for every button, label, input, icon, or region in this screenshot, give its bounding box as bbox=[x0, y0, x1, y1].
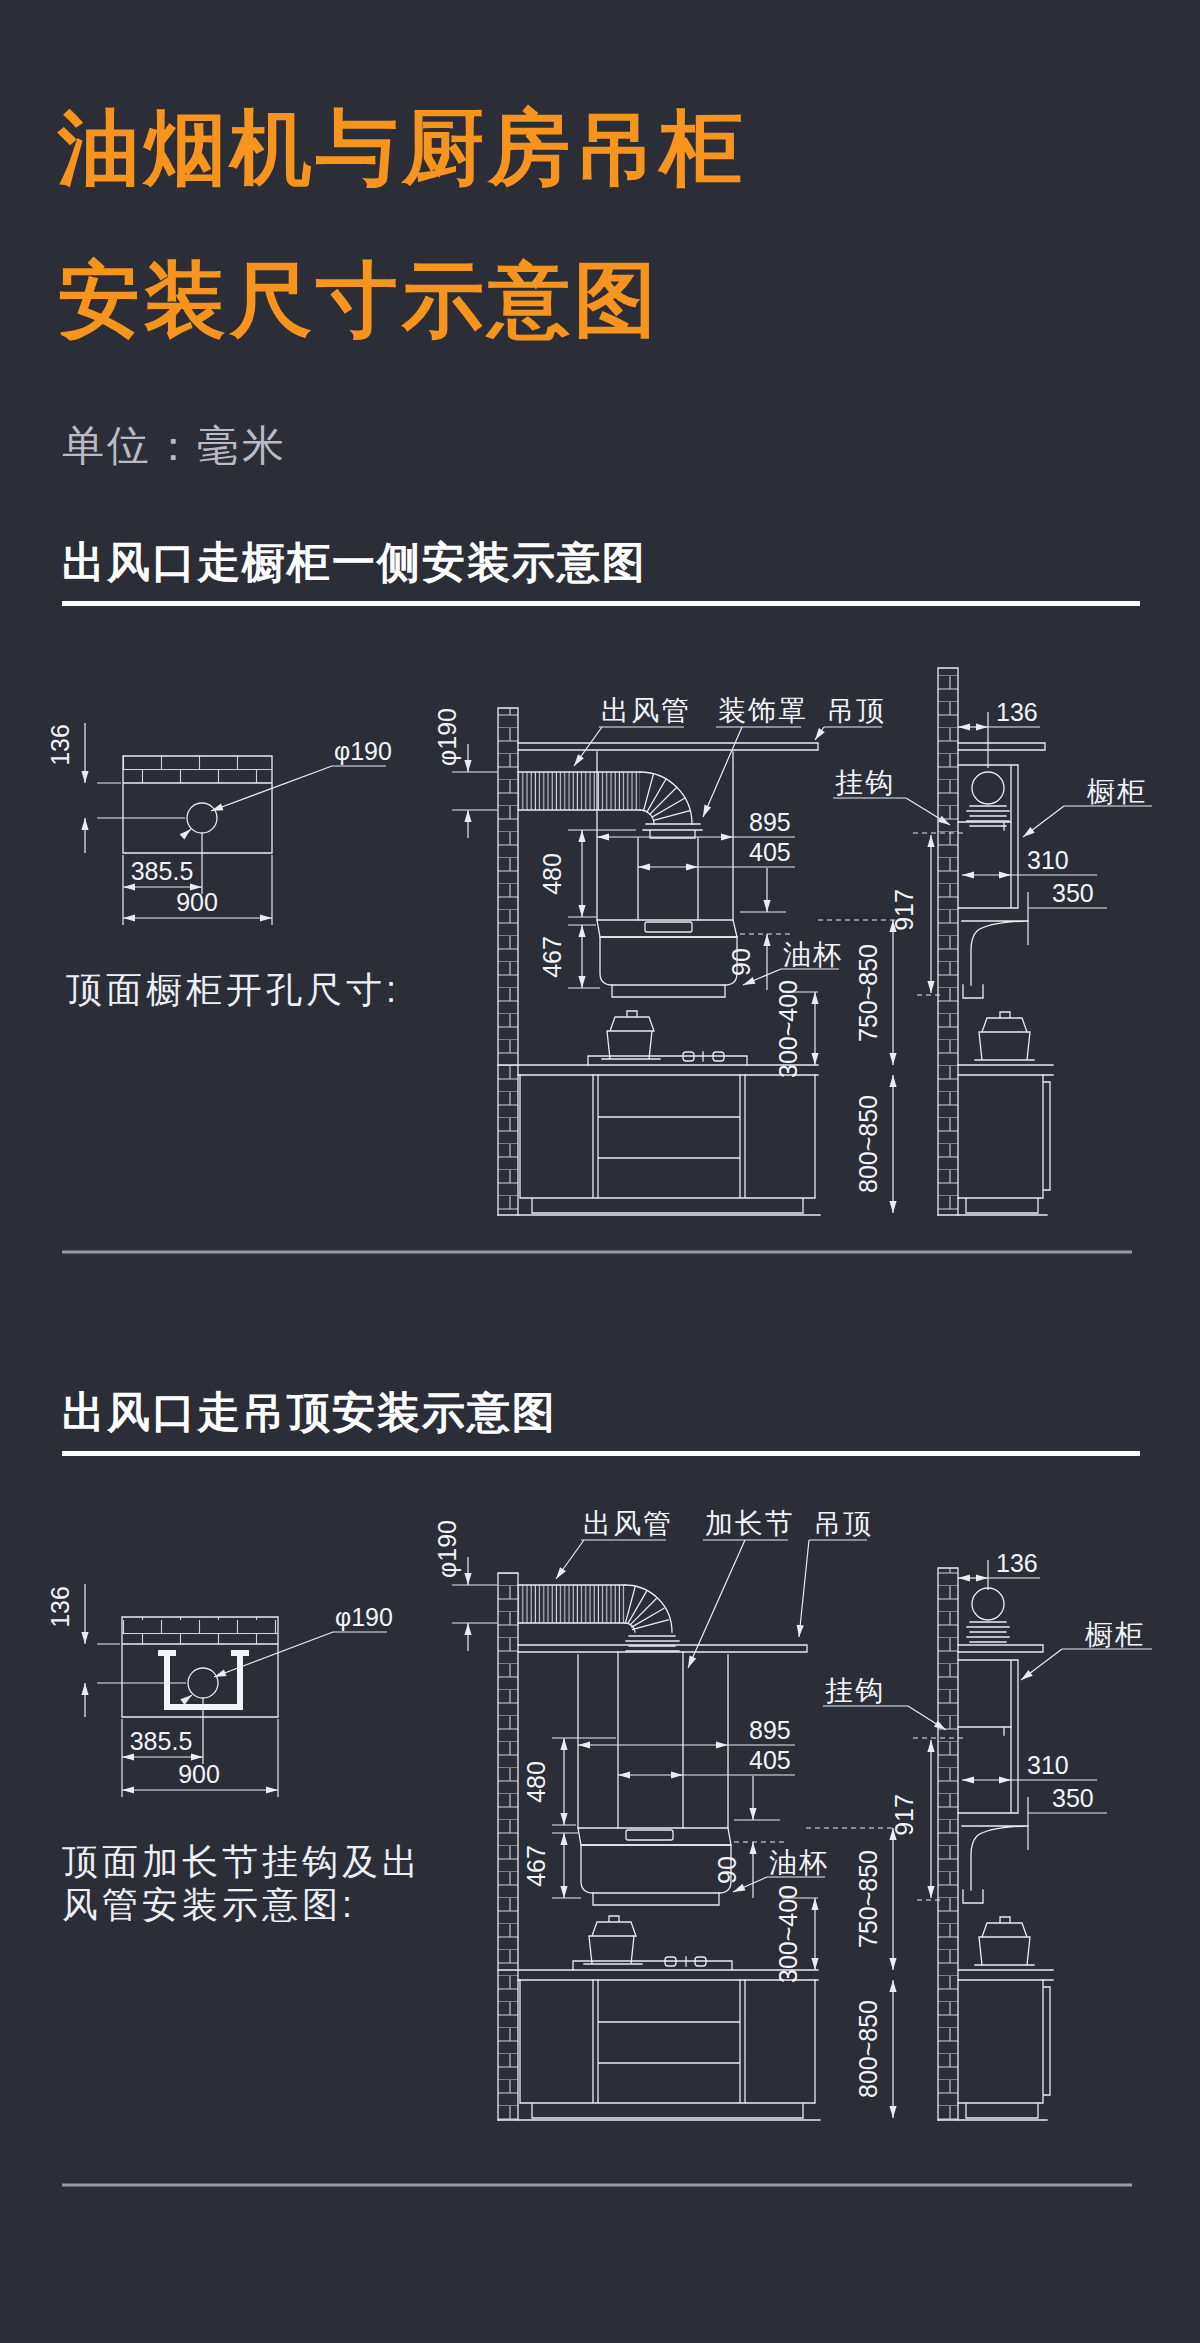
brick-course bbox=[122, 1617, 278, 1644]
edge-distance-dim: 136 bbox=[46, 1586, 74, 1628]
duct-diameter-dim: φ190 bbox=[433, 1520, 461, 1578]
cooking-pot-side bbox=[975, 1012, 1034, 1060]
hood-depth-dim: 350 bbox=[1052, 879, 1094, 907]
section1-cutout-diagram: φ190 136 385.5 900 bbox=[46, 723, 392, 925]
hood-control-panel bbox=[645, 922, 692, 932]
outlet-width-dim: 405 bbox=[749, 838, 791, 866]
cover-label: 装饰罩 bbox=[718, 695, 808, 726]
cooktop bbox=[573, 1961, 732, 1970]
section2-cutout-diagram: φ190 136 385.5 900 bbox=[46, 1584, 393, 1797]
countertop-side bbox=[958, 1065, 1053, 1075]
hood-height-dim: 750~850 bbox=[854, 1850, 882, 1948]
cooking-pot bbox=[602, 1011, 660, 1059]
section2-front-view: φ190 出风管 加长节 吊顶 挂钩 895 405 480 467 90 油杯… bbox=[433, 1508, 946, 2120]
duct-label: 出风管 bbox=[583, 1508, 673, 1539]
hood-body bbox=[600, 937, 737, 985]
oil-cup-label: 油杯 bbox=[783, 939, 843, 970]
oil-cup-lip bbox=[612, 985, 725, 997]
cabinet-width-dim: 900 bbox=[176, 888, 218, 916]
hook-height-dim: 917 bbox=[890, 1794, 918, 1836]
oil-cup-lip bbox=[593, 1893, 719, 1905]
flex-duct bbox=[518, 772, 640, 810]
cabinet-depth-dim: 310 bbox=[1027, 1751, 1069, 1779]
extension-label: 加长节 bbox=[705, 1508, 795, 1539]
clearance-dim: 300~400 bbox=[774, 1885, 802, 1983]
duct-label: 出风管 bbox=[601, 695, 691, 726]
cabinet-depth-dim: 310 bbox=[1027, 846, 1069, 874]
vent-hole bbox=[188, 1668, 218, 1698]
section1-side-view: 136 橱柜 310 350 917 bbox=[890, 668, 1152, 1215]
wall-column bbox=[498, 708, 518, 1215]
hole-diameter-dim: φ190 bbox=[335, 1603, 393, 1631]
hood-width-dim: 895 bbox=[749, 808, 791, 836]
duct-corrugation bbox=[967, 806, 1009, 826]
hood-depth-dim: 350 bbox=[1052, 1784, 1094, 1812]
hood-side-profile bbox=[962, 1826, 1028, 1903]
hole-diameter-dim: φ190 bbox=[334, 737, 392, 765]
cup-height-dim: 90 bbox=[727, 948, 755, 976]
countertop-side bbox=[958, 1970, 1053, 1980]
counter-height-dim: 800~850 bbox=[854, 1095, 882, 1193]
ceiling-stub bbox=[958, 1645, 1043, 1652]
duct-flange bbox=[626, 1636, 679, 1651]
hook-height-dim: 917 bbox=[890, 889, 918, 931]
ceiling-line bbox=[518, 743, 818, 750]
hood-body bbox=[581, 1845, 731, 1893]
clearance-dim: 300~400 bbox=[774, 980, 802, 1078]
counter-height-dim: 800~850 bbox=[854, 2000, 882, 2098]
cabinet-width-dim: 900 bbox=[178, 1760, 220, 1788]
cup-height-dim: 90 bbox=[713, 1856, 741, 1884]
ceiling-stub bbox=[958, 743, 1045, 750]
cooking-pot-side bbox=[975, 1917, 1034, 1965]
wall-column bbox=[498, 1573, 518, 2120]
upper-cabinet-side bbox=[958, 765, 1018, 908]
upper-height-dim: 480 bbox=[522, 1761, 550, 1803]
hood-width-dim: 895 bbox=[749, 1716, 791, 1744]
countertop bbox=[498, 1065, 818, 1075]
upper-cabinet-side bbox=[958, 1660, 1018, 1813]
duct-section-circle bbox=[972, 772, 1004, 804]
hook-label: 挂钩 bbox=[825, 1675, 885, 1706]
cabinet-label: 橱柜 bbox=[1085, 1619, 1145, 1650]
hook-bracket bbox=[958, 1727, 1011, 1735]
lower-height-dim: 467 bbox=[538, 936, 566, 978]
vent-hole bbox=[187, 803, 217, 833]
duct-diameter-dim: φ190 bbox=[433, 708, 461, 766]
extension-duct bbox=[618, 1652, 683, 1828]
cabinet-label: 橱柜 bbox=[1087, 776, 1147, 807]
oil-cup-label: 油杯 bbox=[769, 1847, 829, 1878]
hook-label: 挂钩 bbox=[835, 767, 895, 798]
center-offset-dim: 385.5 bbox=[131, 857, 194, 885]
wall-gap-dim: 136 bbox=[996, 1549, 1038, 1577]
duct-flange bbox=[643, 824, 702, 838]
hood-side-profile bbox=[962, 921, 1028, 998]
center-offset-dim: 385.5 bbox=[130, 1727, 193, 1755]
wall-gap-dim: 136 bbox=[996, 698, 1038, 726]
wall-column bbox=[938, 1568, 958, 2120]
ceiling-label: 吊顶 bbox=[813, 1508, 873, 1539]
duct-corrugation bbox=[967, 1622, 1009, 1642]
countertop bbox=[498, 1970, 818, 1980]
upper-height-dim: 480 bbox=[538, 853, 566, 895]
edge-distance-dim: 136 bbox=[46, 724, 74, 766]
base-cabinet bbox=[498, 1075, 820, 1215]
hood-control-panel bbox=[626, 1830, 673, 1840]
cooking-pot bbox=[584, 1916, 642, 1964]
wall-column bbox=[938, 668, 958, 1215]
outlet-width-dim: 405 bbox=[749, 1746, 791, 1774]
decorative-cover bbox=[578, 1655, 728, 1828]
flex-duct bbox=[518, 1585, 625, 1623]
brick-course bbox=[123, 756, 272, 783]
technical-drawing-canvas: φ190 136 385.5 900 bbox=[0, 0, 1200, 2343]
section1-front-view: φ190 出风管 装饰罩 吊顶 挂钩 895 405 480 467 90 油杯… bbox=[433, 695, 950, 1215]
lower-height-dim: 467 bbox=[522, 1845, 550, 1887]
duct-section-circle bbox=[972, 1588, 1004, 1620]
hood-height-dim: 750~850 bbox=[854, 944, 882, 1042]
base-cabinet bbox=[498, 1980, 820, 2120]
ceiling-label: 吊顶 bbox=[826, 695, 886, 726]
section2-side-view: 136 橱柜 310 917 350 917 bbox=[890, 1549, 1152, 2120]
